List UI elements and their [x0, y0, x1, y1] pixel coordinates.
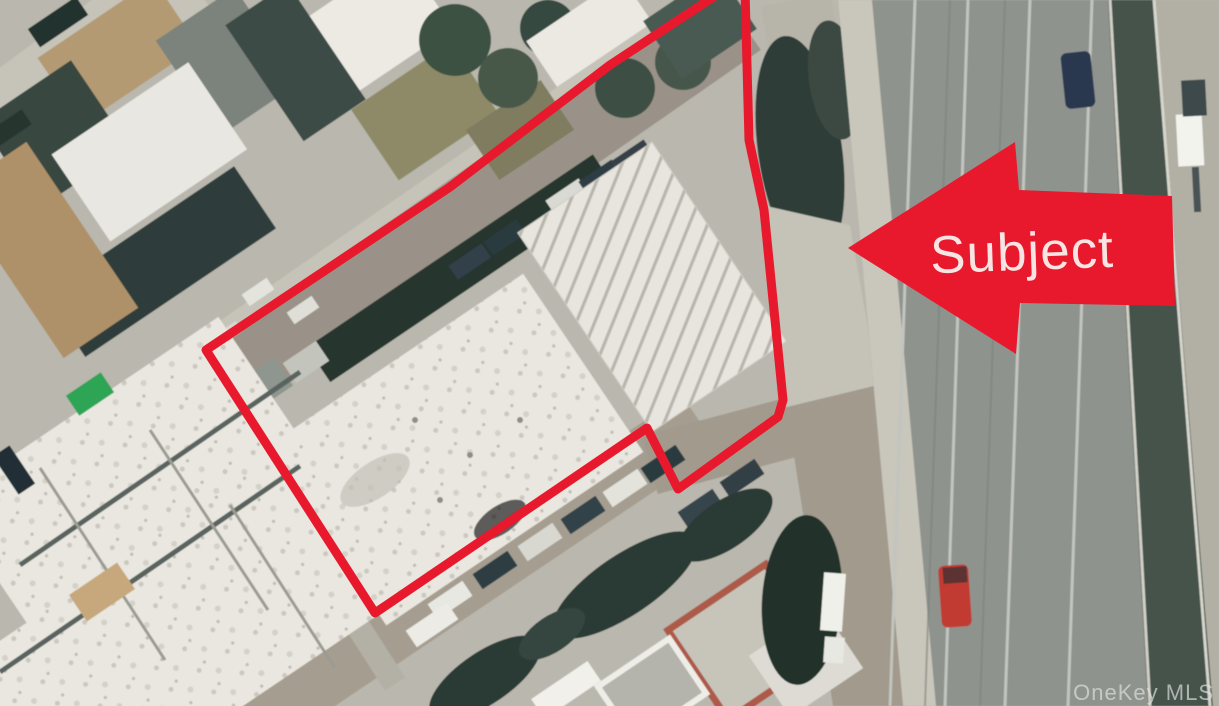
truck-trailer [1181, 79, 1207, 116]
truck [820, 572, 846, 631]
aerial-photo-canvas: Subject OneKey MLS [0, 0, 1219, 706]
car-red-windshield [942, 566, 967, 584]
tree [478, 48, 538, 108]
tree [419, 4, 491, 76]
roof-vent [517, 417, 523, 423]
watermark: OneKey MLS [1073, 680, 1214, 705]
roof-vent [437, 497, 443, 503]
aerial-photo: Subject OneKey MLS [0, 0, 1219, 706]
subject-label: Subject [929, 220, 1115, 285]
highway [838, 0, 1219, 706]
car [823, 636, 845, 663]
roof-vent [412, 417, 418, 423]
roof-vent [467, 452, 473, 458]
truck [1176, 113, 1205, 166]
car [1060, 51, 1096, 110]
